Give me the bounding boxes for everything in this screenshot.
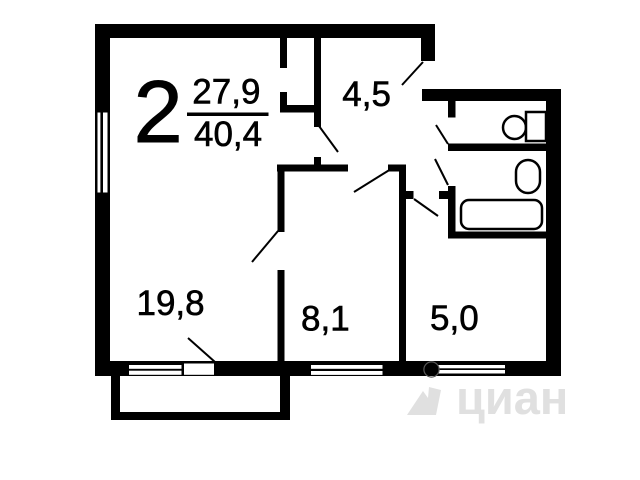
svg-text:4,5: 4,5 [342,75,391,114]
svg-text:19,8: 19,8 [137,284,205,323]
svg-text:2: 2 [134,62,183,161]
svg-text:27,9: 27,9 [192,73,260,112]
svg-text:40,4: 40,4 [194,115,262,154]
svg-text:8,1: 8,1 [301,300,350,339]
svg-text:5,0: 5,0 [430,299,479,338]
svg-text:циан: циан [456,371,568,424]
